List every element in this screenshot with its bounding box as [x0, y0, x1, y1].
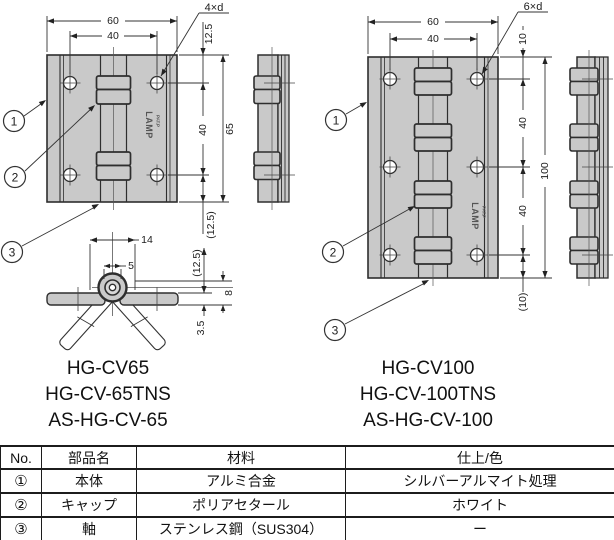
dim-height: 65 — [224, 123, 236, 135]
cell-finish: ー — [346, 517, 614, 540]
balloon-1: 1 — [11, 115, 18, 129]
cell-material: ステンレス鋼（SUS304） — [137, 517, 346, 540]
left-side-view — [254, 47, 295, 210]
dim-knuckle-height: 8 — [223, 290, 235, 296]
hole-callout: 6×d — [524, 1, 543, 13]
cell-part: 軸 — [42, 517, 137, 540]
right-front-view — [368, 50, 498, 286]
dim-pin-width: 5 — [128, 260, 134, 272]
table-row: ② キャップ ポリアセタール ホワイト — [1, 493, 614, 517]
dim-hole-pitch-x: 40 — [427, 33, 439, 45]
section-view: 14 5 (12.5) 8 3.5 — [47, 232, 235, 353]
model-name: AS-HG-CV-100 — [320, 408, 536, 434]
cell-part: キャップ — [42, 493, 137, 517]
cell-no: ③ — [1, 517, 42, 540]
dim-hole-pitch-y: 40 — [197, 124, 209, 136]
right-side-view — [570, 50, 613, 286]
model-names-left: HG-CV65 HG-CV-65TNS AS-HG-CV-65 — [0, 356, 216, 434]
dim-edge-top: 10 — [517, 33, 529, 45]
dim-edge-bottom: (12.5) — [205, 211, 217, 238]
col-header-no: No. — [1, 446, 42, 469]
cell-finish: シルバーアルマイト処理 — [346, 469, 614, 493]
dim-pitch-a: 40 — [517, 117, 529, 129]
model-name: HG-CV65 — [0, 356, 216, 382]
patent-mark: PAT.P — [156, 115, 161, 127]
model-name: HG-CV-65TNS — [0, 382, 216, 408]
brand-logo: LAMP — [470, 202, 480, 230]
table-row: ① 本体 アルミ合金 シルバーアルマイト処理 — [1, 469, 614, 493]
patent-mark: PAT.P — [482, 206, 487, 218]
table-row: ③ 軸 ステンレス鋼（SUS304） ー — [1, 517, 614, 540]
cell-no: ② — [1, 493, 42, 517]
balloon-3: 3 — [9, 246, 16, 260]
left-front-view — [47, 47, 177, 210]
table-header-row: No. 部品名 材料 仕上/色 — [1, 446, 614, 469]
pin-hole — [109, 284, 115, 290]
cell-no: ① — [1, 469, 42, 493]
dim-width: 60 — [107, 15, 119, 27]
dim-height-ref: (12.5) — [191, 249, 203, 276]
dim-hole-pitch-x: 40 — [107, 30, 119, 42]
dim-edge-bottom: (10) — [517, 293, 529, 312]
dim-width: 60 — [427, 16, 439, 28]
cell-finish: ホワイト — [346, 493, 614, 517]
balloon-3: 3 — [332, 324, 339, 338]
model-name: HG-CV100 — [320, 356, 536, 382]
cell-material: ポリアセタール — [137, 493, 346, 517]
model-names-right: HG-CV100 HG-CV-100TNS AS-HG-CV-100 — [320, 356, 536, 434]
catalog-page: LAMP PAT.P 60 40 4×d 12.5 40 65 (12.5) — [0, 0, 614, 540]
brand-logo: LAMP — [144, 111, 154, 139]
col-header-finish: 仕上/色 — [346, 446, 614, 469]
dim-plate-thickness: 3.5 — [195, 321, 207, 336]
model-name: HG-CV-100TNS — [320, 382, 536, 408]
hole-callout: 4×d — [205, 2, 224, 14]
balloon-1: 1 — [333, 114, 340, 128]
col-header-part: 部品名 — [42, 446, 137, 469]
parts-table: No. 部品名 材料 仕上/色 ① 本体 アルミ合金 シルバーアルマイト処理 ②… — [0, 445, 614, 540]
col-header-material: 材料 — [137, 446, 346, 469]
dim-pitch-b: 40 — [517, 205, 529, 217]
balloon-2: 2 — [330, 246, 337, 260]
dim-height: 100 — [539, 162, 551, 180]
model-name: AS-HG-CV-65 — [0, 408, 216, 434]
balloon-2: 2 — [12, 171, 19, 185]
cell-material: アルミ合金 — [137, 469, 346, 493]
dim-cap-width: 14 — [141, 234, 153, 246]
cell-part: 本体 — [42, 469, 137, 493]
dim-edge-top: 12.5 — [203, 24, 215, 45]
